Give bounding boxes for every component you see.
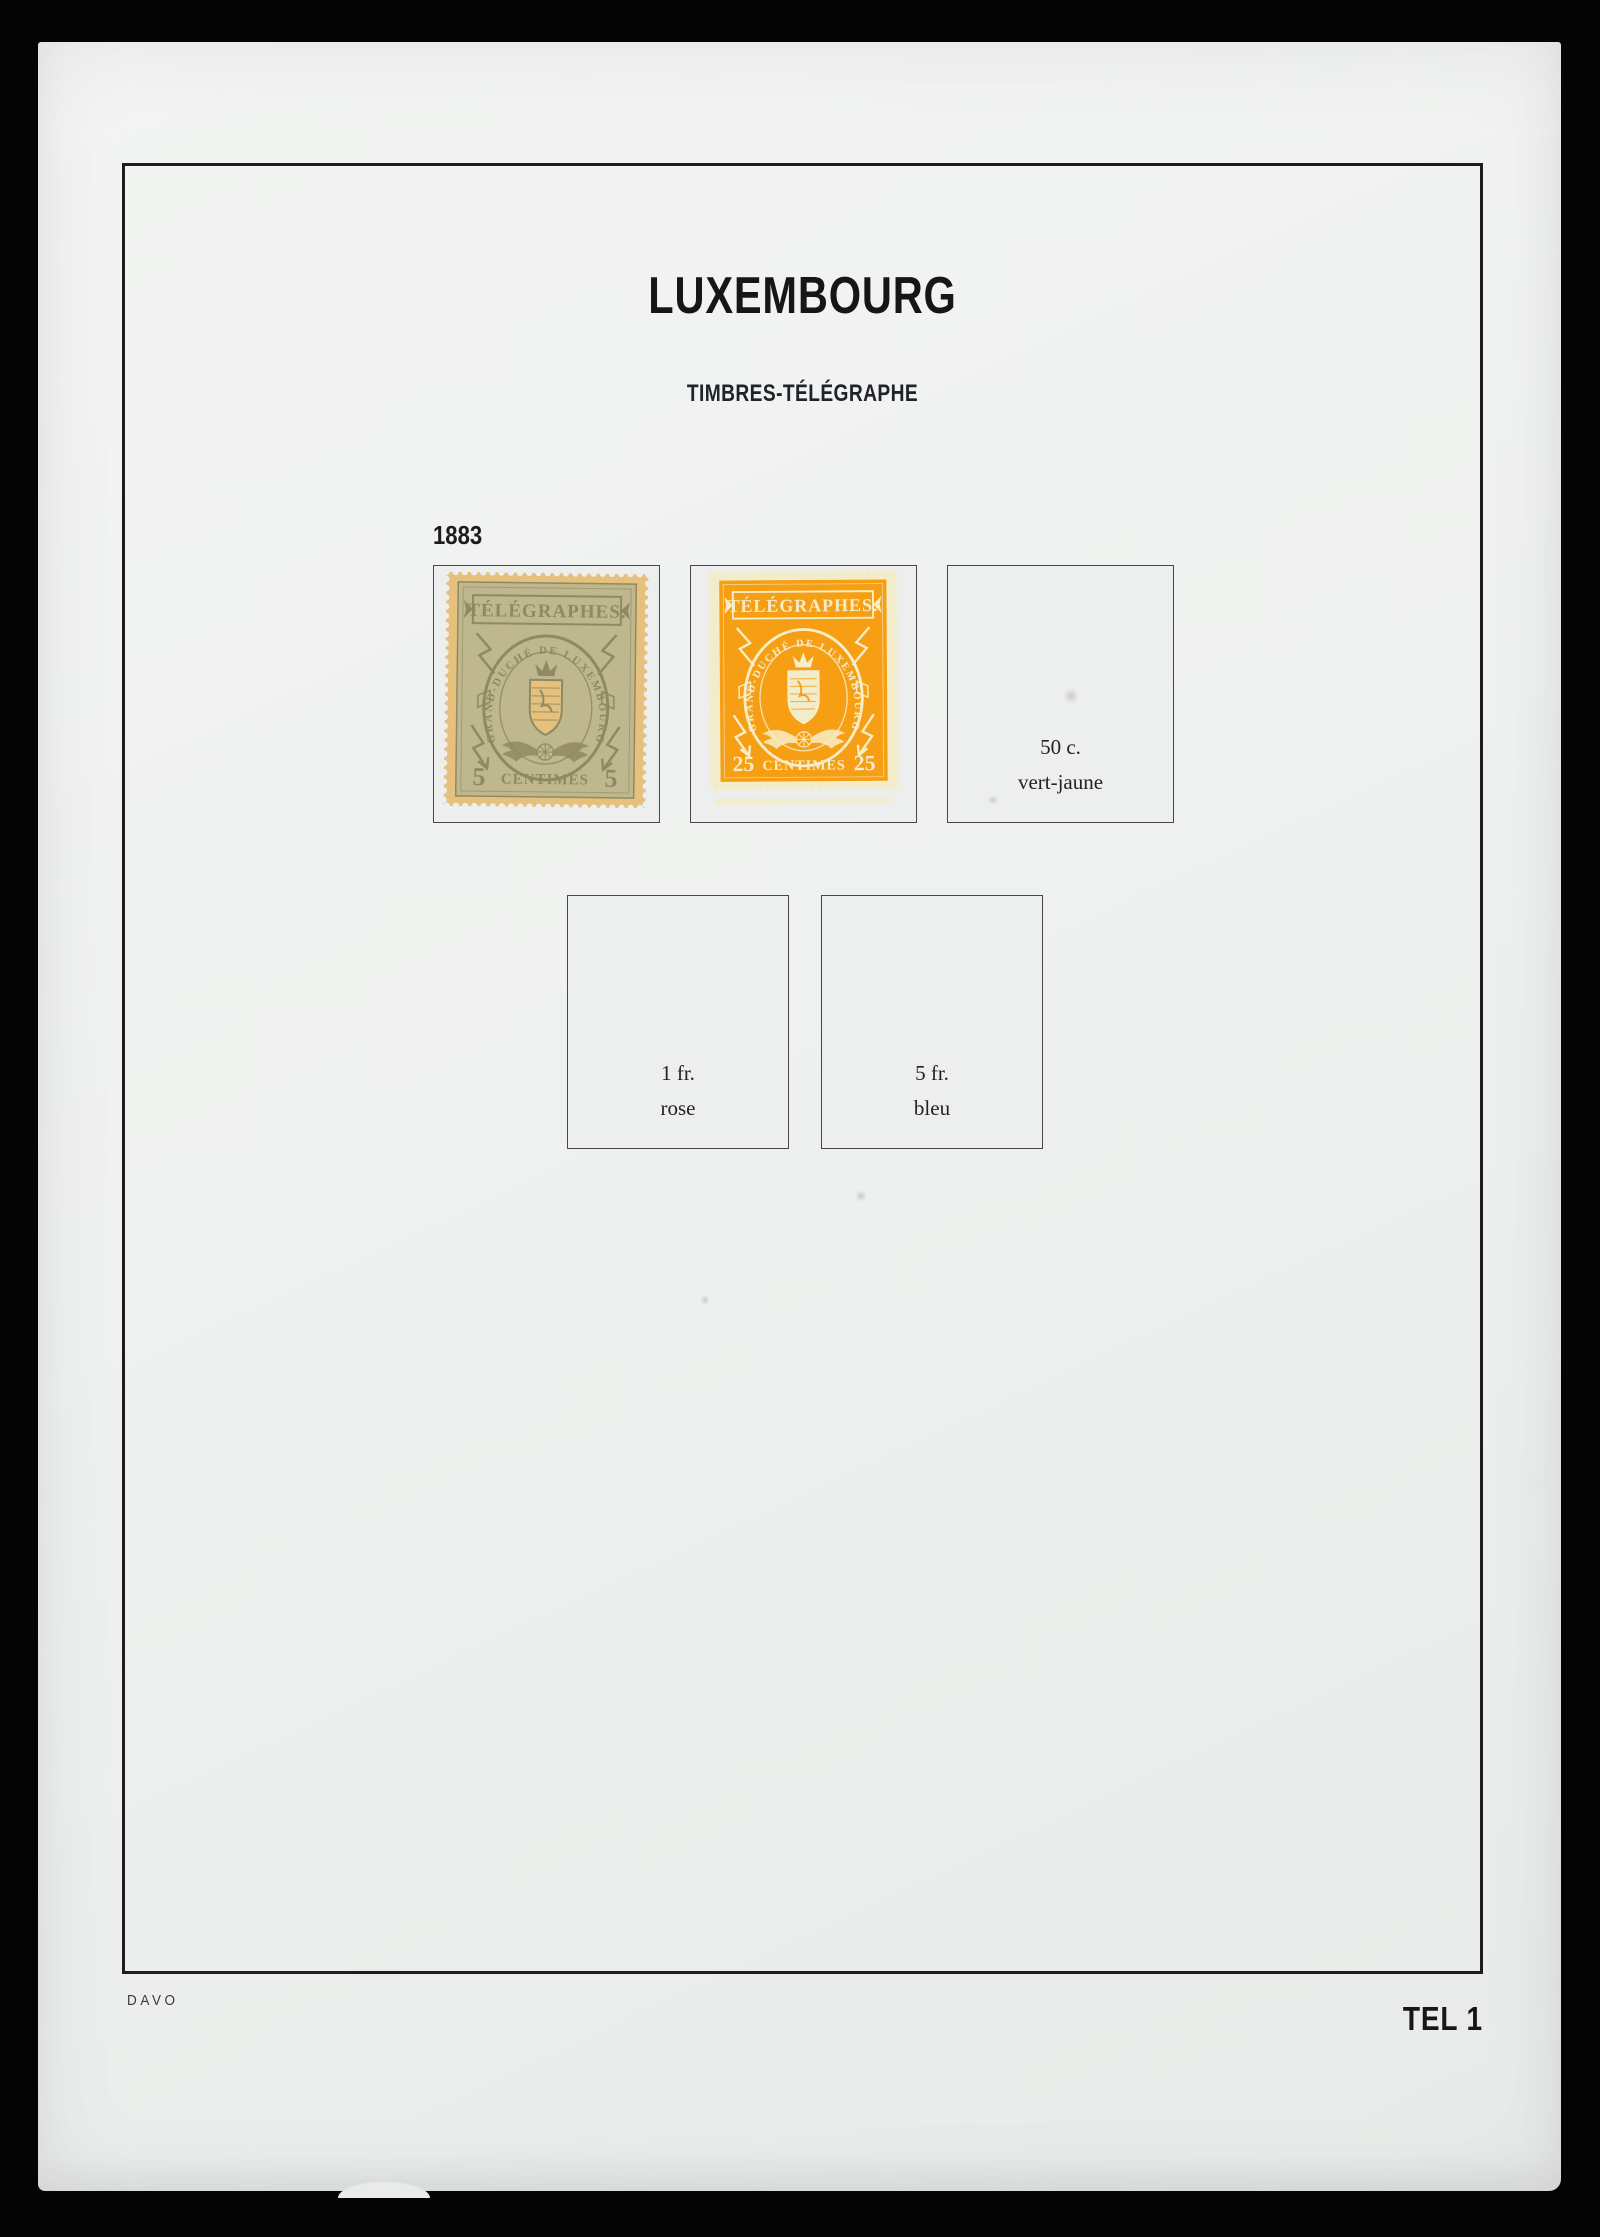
placeholder-caption: 5 fr. bleu [914,1061,950,1148]
page-subtitle: TIMBRES-TÉLÉGRAPHE [261,382,1345,406]
value-word: CENTIMES [501,771,589,788]
issue-year-label: 1883 [433,522,482,548]
stamp-25-centimes-image: TÉLÉGRAPHES. GRAND-DUCHÉ DE LUXEMBOURG [704,566,903,806]
placeholder-color-name: vert-jaune [1018,770,1103,795]
banner-text: TÉLÉGRAPHES. [727,594,878,616]
stamp-25-centimes: TÉLÉGRAPHES. GRAND-DUCHÉ DE LUXEMBOURG [704,566,903,806]
value-numeral-right: 25 [854,751,876,775]
stamp-5-centimes-image: TÉLÉGRAPHES. GRAND-DUCHÉ DE LUXEMBOURG [441,569,652,812]
stamp-mount-box: TÉLÉGRAPHES. GRAND-DUCHÉ DE LUXEMBOURG [433,565,660,823]
paper-smudge [1063,688,1079,704]
publisher-mark: DAVO [127,1993,179,2008]
page-border-frame: LUXEMBOURG TIMBRES-TÉLÉGRAPHE 1883 TÉLÉG… [122,163,1483,1974]
stamp-5-centimes: TÉLÉGRAPHES. GRAND-DUCHÉ DE LUXEMBOURG [441,569,652,812]
placeholder-value: 50 c. [1040,735,1081,760]
placeholder-box-5fr: 5 fr. bleu [821,895,1043,1149]
stamp-mount-box: TÉLÉGRAPHES. GRAND-DUCHÉ DE LUXEMBOURG [690,565,917,823]
placeholder-box-1fr: 1 fr. rose [567,895,789,1149]
paper-smudge [855,1190,867,1202]
wheel-spokes [796,732,811,747]
placeholder-color-name: bleu [914,1096,950,1121]
value-numeral-left: 25 [732,752,754,776]
placeholder-caption: 50 c. vert-jaune [1018,735,1103,822]
paper-smudge [988,795,998,805]
paper-smudge [700,1295,710,1305]
wheel-spokes [537,744,553,760]
album-page: LUXEMBOURG TIMBRES-TÉLÉGRAPHE 1883 TÉLÉG… [38,42,1561,2191]
value-numeral-right: 5 [604,764,617,793]
placeholder-value: 1 fr. [661,1061,695,1086]
placeholder-caption: 1 fr. rose [661,1061,696,1148]
adjacent-perforation-strip [715,797,893,806]
page-code: TEL 1 [255,2002,1483,2035]
banner-text: TÉLÉGRAPHES. [467,599,627,623]
photo-background: LUXEMBOURG TIMBRES-TÉLÉGRAPHE 1883 TÉLÉG… [0,0,1600,2237]
placeholder-value: 5 fr. [915,1061,949,1086]
value-numeral-left: 5 [472,762,485,791]
placeholder-color-name: rose [661,1096,696,1121]
placeholder-box-50c: 50 c. vert-jaune [947,565,1174,823]
page-title: LUXEMBOURG [261,270,1345,322]
value-word: CENTIMES [762,757,845,774]
